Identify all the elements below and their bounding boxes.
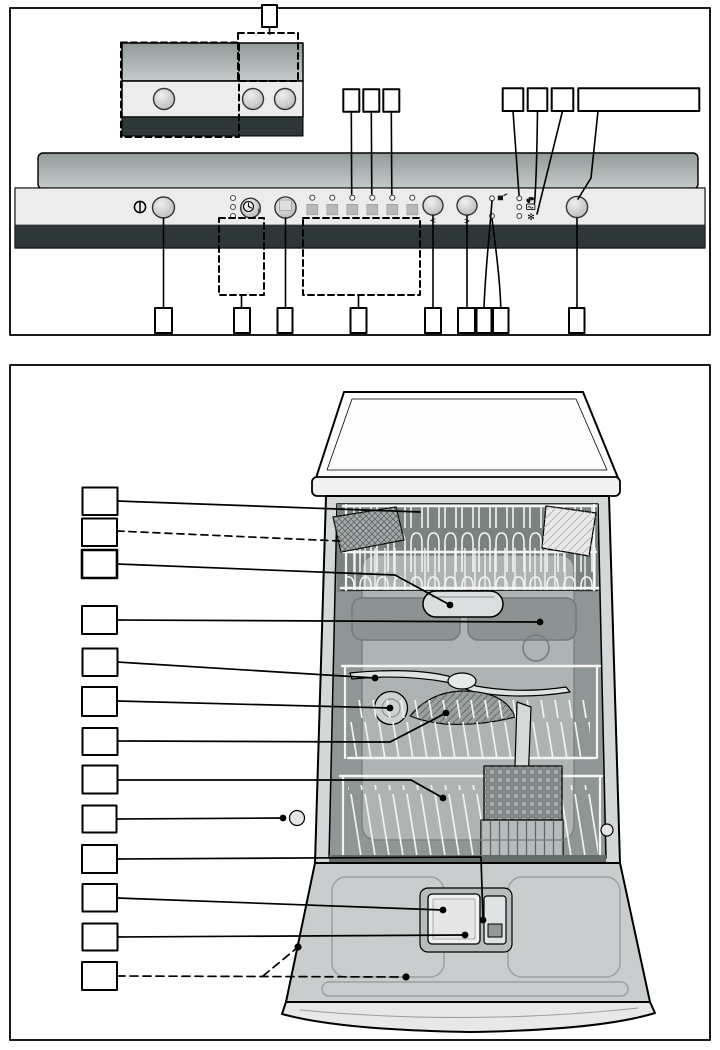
inset-dark-strip <box>122 117 303 136</box>
callouts-above-right <box>503 88 700 111</box>
tab-container <box>423 591 503 617</box>
basket-roller <box>290 811 305 826</box>
inset-door-edge <box>122 43 303 81</box>
inset-button <box>154 89 175 110</box>
callout-box <box>83 806 117 833</box>
detergent-dispenser <box>420 888 512 952</box>
interior-section <box>10 365 710 1040</box>
open-door <box>282 855 655 1032</box>
led <box>517 205 522 210</box>
rinse-aid-refill-icon: ✻ <box>527 213 535 223</box>
callout-box <box>343 89 359 111</box>
callout-box <box>83 884 118 912</box>
led <box>231 205 236 210</box>
callout-box <box>552 88 574 111</box>
callout-box <box>234 308 250 333</box>
led <box>490 196 495 201</box>
inset-button <box>275 89 296 110</box>
callout-box <box>569 308 585 333</box>
cup-shelf <box>542 506 596 556</box>
callout-box <box>83 728 118 755</box>
fascia <box>16 189 705 225</box>
callout-box <box>82 550 117 578</box>
option-button-icon <box>280 200 292 211</box>
callout-box <box>363 89 379 111</box>
power-button <box>153 197 175 218</box>
status-leds <box>231 196 236 219</box>
callout-box <box>83 488 118 516</box>
callout-box <box>82 962 117 990</box>
callout-box <box>493 308 509 333</box>
fascia-dark-strip <box>16 225 705 248</box>
start-button <box>566 196 587 217</box>
callouts-above-left <box>343 89 399 111</box>
callout-box <box>82 519 117 547</box>
callout-box <box>83 766 118 794</box>
control-panel-section: h < > <box>10 5 710 335</box>
door-top-edge <box>38 153 698 189</box>
callout-box <box>425 308 441 333</box>
inset-button <box>243 89 264 110</box>
callout-box <box>262 5 277 27</box>
basket-roller <box>601 824 613 836</box>
callout-box <box>278 308 293 333</box>
callout-box <box>82 606 117 634</box>
callout-box <box>383 89 399 111</box>
callout-box <box>458 308 475 333</box>
option-button <box>275 197 296 218</box>
led <box>231 196 236 201</box>
delay-timer-button: h <box>241 198 262 218</box>
callout-box <box>503 88 524 111</box>
callout-box <box>477 308 492 333</box>
callout-box <box>351 308 367 333</box>
callout-box <box>82 687 117 716</box>
diagram-canvas: h < > <box>0 0 720 1050</box>
callout-box-wide <box>578 88 699 111</box>
hour-label: h <box>258 209 262 215</box>
callout-box <box>155 308 172 333</box>
worktop <box>312 392 620 496</box>
led <box>517 214 522 219</box>
callout-box <box>82 845 117 873</box>
callout-box <box>528 88 548 111</box>
callout-box <box>83 924 118 951</box>
led <box>517 196 522 201</box>
manual-page: h < > <box>0 0 720 1050</box>
clock-icon <box>244 202 254 212</box>
callout-box <box>83 649 118 677</box>
